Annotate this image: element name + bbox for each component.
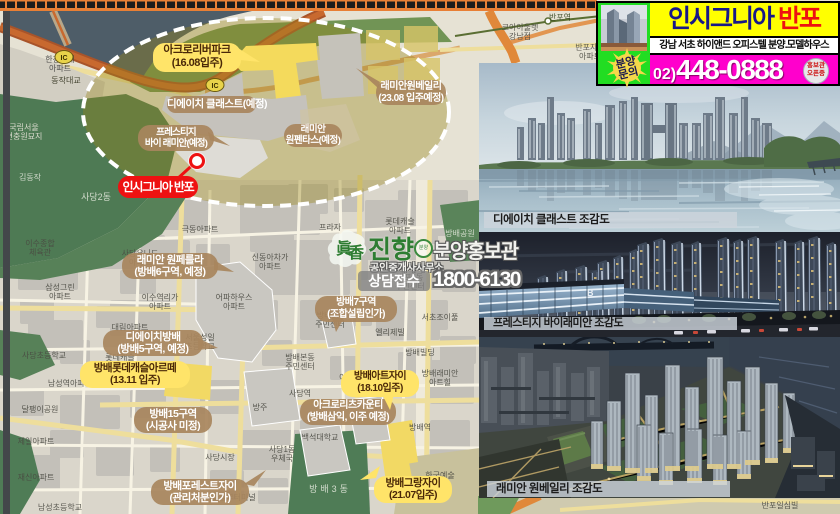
- svg-text:아파트: 아파트: [149, 301, 171, 311]
- svg-text:강남점: 강남점: [509, 31, 531, 41]
- svg-text:香: 香: [347, 244, 365, 262]
- svg-text:사당역: 사당역: [289, 388, 311, 398]
- svg-text:재신아파트: 재신아파트: [18, 472, 55, 482]
- svg-text:IC: IC: [212, 83, 219, 90]
- svg-text:이수종합: 이수종합: [25, 238, 55, 248]
- svg-text:롯데캐슬: 롯데캐슬: [385, 216, 414, 226]
- svg-text:동작대교: 동작대교: [51, 75, 80, 85]
- svg-text:신동아차가: 신동아차가: [252, 252, 289, 262]
- svg-text:방배3동: 방배3동: [309, 484, 351, 494]
- svg-text:사당시장: 사당시장: [205, 452, 235, 462]
- svg-text:아파트: 아파트: [223, 301, 245, 311]
- svg-text:어파하우스: 어파하우스: [216, 292, 253, 302]
- svg-text:방배래미안: 방배래미안: [422, 368, 459, 378]
- svg-text:극동아파트: 극동아파트: [182, 224, 219, 234]
- svg-text:주민센터: 주민센터: [285, 361, 314, 371]
- svg-text:백석대학교: 백석대학교: [302, 432, 339, 442]
- svg-text:방배빌딩: 방배빌딩: [405, 347, 434, 357]
- svg-text:이수역리가: 이수역리가: [142, 292, 179, 302]
- svg-text:김동작: 김동작: [19, 172, 42, 182]
- svg-text:사당초등학교: 사당초등학교: [22, 350, 66, 360]
- svg-text:아트힐: 아트힐: [429, 377, 451, 387]
- svg-text:체육관: 체육관: [29, 247, 52, 257]
- svg-text:제일아파트: 제일아파트: [18, 436, 55, 446]
- svg-text:사당2동: 사당2동: [81, 192, 111, 202]
- svg-text:아파트: 아파트: [49, 291, 71, 301]
- svg-text:아파트: 아파트: [259, 261, 281, 271]
- svg-text:방배역: 방배역: [409, 422, 431, 432]
- svg-text:국립서울: 국립서울: [9, 123, 38, 132]
- svg-text:서초조이풀: 서초조이풀: [422, 312, 459, 322]
- svg-text:우체국: 우체국: [271, 453, 293, 463]
- svg-text:달팽이공원: 달팽이공원: [22, 404, 59, 414]
- svg-text:방주: 방주: [253, 402, 268, 412]
- svg-text:사당1동: 사당1동: [269, 444, 296, 454]
- svg-text:반포역: 반포역: [549, 12, 571, 22]
- svg-text:남성초등학교: 남성초등학교: [38, 502, 82, 512]
- svg-text:방배본동: 방배본동: [285, 352, 314, 362]
- svg-text:현충원묘지: 현충원묘지: [6, 132, 43, 141]
- svg-text:아파트: 아파트: [49, 63, 71, 73]
- svg-text:IC: IC: [61, 55, 68, 62]
- svg-text:B: B: [587, 288, 594, 298]
- svg-text:삼성그린: 삼성그린: [45, 282, 74, 292]
- svg-text:코아아울렛: 코아아울렛: [502, 22, 539, 32]
- svg-text:반포일심빌: 반포일심빌: [762, 500, 799, 510]
- svg-text:엘리제빌: 엘리제빌: [375, 327, 404, 337]
